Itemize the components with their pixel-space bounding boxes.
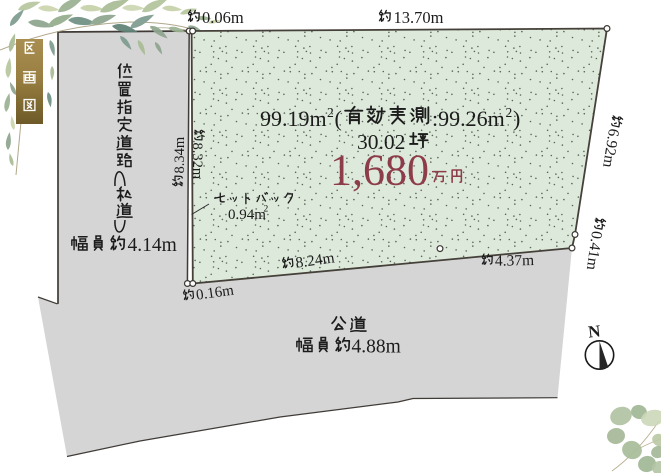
svg-text:1,680: 1,680	[330, 146, 429, 195]
svg-text:(: (	[335, 106, 342, 131]
svg-text:2: 2	[327, 105, 334, 120]
svg-text:4.14m: 4.14m	[128, 235, 177, 256]
svg-text:N: N	[587, 321, 602, 341]
svg-text:): )	[513, 106, 520, 131]
svg-text:6.92m: 6.92m	[599, 127, 622, 168]
svg-text:0.06m: 0.06m	[202, 8, 244, 27]
svg-text::99.26m: :99.26m	[432, 106, 505, 131]
svg-text:0.94m: 0.94m	[228, 207, 266, 223]
svg-text:8.32m: 8.32m	[189, 143, 205, 180]
svg-text:4.37m: 4.37m	[495, 252, 534, 270]
svg-text:2: 2	[264, 205, 269, 215]
svg-text:13.70m: 13.70m	[394, 8, 444, 27]
svg-text:99.19m: 99.19m	[260, 106, 327, 131]
svg-text:8.34m: 8.34m	[172, 136, 188, 173]
svg-text:4.88m: 4.88m	[352, 337, 401, 358]
svg-text:0.41m: 0.41m	[583, 230, 605, 271]
svg-text:2: 2	[506, 105, 513, 120]
